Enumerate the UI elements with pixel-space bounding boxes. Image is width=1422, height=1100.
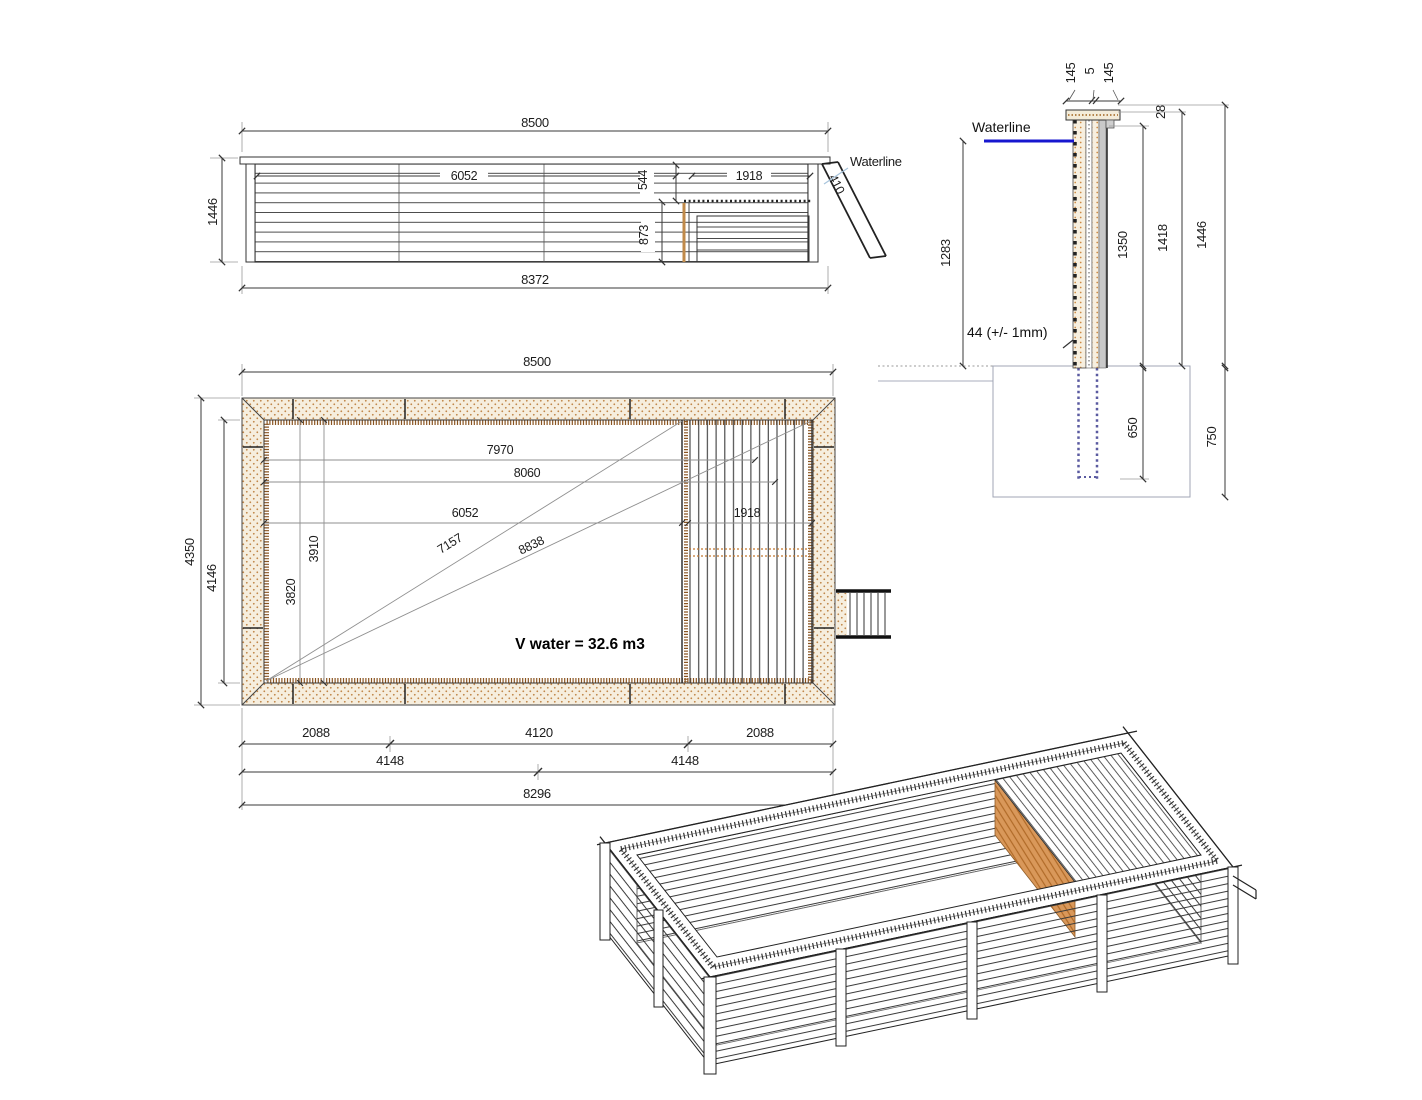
- svg-text:1418: 1418: [1155, 224, 1170, 252]
- svg-text:44 (+/- 1mm): 44 (+/- 1mm): [967, 324, 1048, 340]
- svg-text:8500: 8500: [523, 354, 551, 369]
- plan-dim-3910: 3910: [307, 535, 321, 562]
- plan-dim-8838: 8838: [516, 533, 546, 557]
- side-elevation-view: 410 Waterline 8500 1446 8372: [180, 95, 920, 315]
- svg-text:4146: 4146: [204, 564, 219, 592]
- plan-dim-6052: 6052: [452, 506, 479, 520]
- plan-deck: [682, 420, 813, 683]
- svg-text:5: 5: [1082, 67, 1097, 74]
- side-dim-height: 1446: [205, 158, 238, 262]
- svg-text:1446: 1446: [205, 198, 220, 226]
- plan-dim-top-width: 8500: [242, 354, 833, 396]
- section-plank-note: 44 (+/- 1mm): [967, 324, 1073, 348]
- section-waterline: Waterline: [972, 119, 1074, 141]
- plan-volume-note: V water = 32.6 m3: [515, 636, 645, 653]
- side-dim-top-width: 8500: [242, 115, 828, 152]
- svg-text:1918: 1918: [736, 169, 763, 183]
- svg-text:873: 873: [637, 225, 651, 245]
- plan-dim-outer-height: 4350: [182, 398, 240, 705]
- plan-dim-inner-height: 4146: [204, 420, 240, 683]
- svg-text:1446: 1446: [1194, 221, 1209, 249]
- section-dim-cap: 145 5 145: [1063, 63, 1121, 104]
- svg-text:28: 28: [1153, 105, 1168, 119]
- plan-dim-8060: 8060: [514, 466, 541, 480]
- plan-dim-3820: 3820: [284, 578, 298, 605]
- section-dim-28: 28: [1153, 105, 1168, 119]
- svg-text:1350: 1350: [1115, 231, 1130, 259]
- svg-text:8372: 8372: [521, 272, 549, 287]
- svg-text:1283: 1283: [938, 239, 953, 267]
- section-dim-1350: 1350: [1109, 126, 1149, 366]
- svg-text:750: 750: [1204, 427, 1219, 448]
- section-dim-1446: 1446: [1118, 105, 1229, 366]
- svg-text:8296: 8296: [523, 786, 551, 801]
- svg-text:2088: 2088: [302, 725, 330, 740]
- wall-section-view: 145 5 145 Waterline 1283 44 (+/- 1mm) 13…: [870, 35, 1250, 515]
- plan-ladder: [836, 591, 891, 637]
- svg-text:4350: 4350: [182, 538, 197, 566]
- section-dim-650: 650: [1120, 368, 1149, 479]
- svg-text:6052: 6052: [451, 169, 478, 183]
- side-dim-bottom-width: 8372: [242, 266, 828, 294]
- section-buried-post: [1079, 368, 1098, 479]
- svg-text:Waterline: Waterline: [972, 119, 1031, 135]
- plan-dim-7157: 7157: [435, 530, 465, 556]
- svg-text:8500: 8500: [521, 115, 549, 130]
- svg-text:650: 650: [1125, 418, 1140, 439]
- plan-dim-1918: 1918: [734, 506, 761, 520]
- section-wall: [1066, 110, 1120, 368]
- section-dim-750: 750: [1204, 368, 1225, 497]
- technical-drawing-sheet: 410 Waterline 8500 1446 8372: [0, 0, 1422, 1100]
- svg-text:145: 145: [1101, 63, 1116, 84]
- plan-dim-7970: 7970: [487, 443, 514, 457]
- section-dim-1283: 1283: [938, 141, 963, 366]
- svg-text:4120: 4120: [525, 725, 553, 740]
- svg-text:544: 544: [636, 170, 650, 190]
- svg-text:4148: 4148: [376, 753, 404, 768]
- svg-text:145: 145: [1063, 63, 1078, 84]
- isometric-view: [590, 720, 1290, 1100]
